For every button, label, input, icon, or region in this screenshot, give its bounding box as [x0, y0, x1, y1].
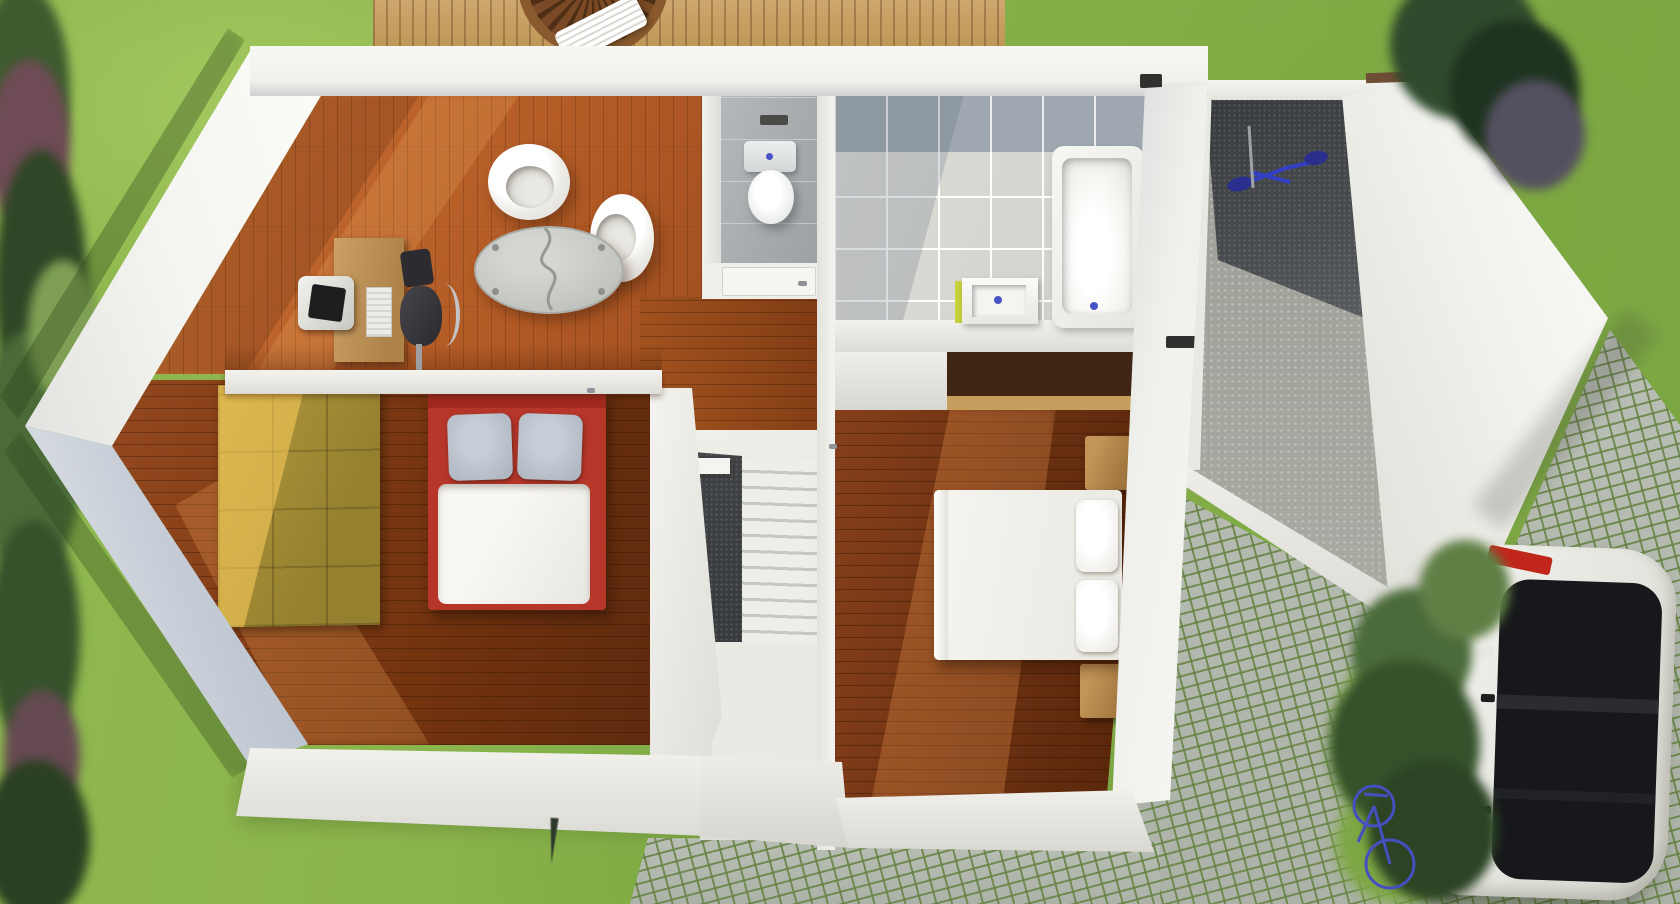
keyboard — [366, 287, 392, 337]
bedroom2-counter-edge — [947, 396, 1141, 410]
wardrobe — [218, 383, 380, 628]
oval-glass-table — [474, 226, 624, 314]
table-leg — [598, 244, 605, 251]
exterior-wall-south — [836, 790, 1154, 852]
bed-double-red-frame — [428, 388, 606, 610]
computer-monitor — [298, 276, 354, 330]
bedroom2-counter — [947, 352, 1141, 398]
bathroom-sink — [962, 278, 1038, 324]
hall-partition-shadow — [225, 344, 662, 372]
table-leg — [492, 244, 499, 251]
wall-vent — [1166, 336, 1198, 348]
bathtub-basin — [1062, 158, 1132, 314]
office-chair-post — [416, 344, 422, 372]
exterior-wall-north — [250, 46, 1208, 96]
cistern-pipe — [760, 115, 788, 125]
door-handle — [587, 388, 595, 393]
pillow — [517, 413, 583, 481]
wc-door-band — [702, 263, 834, 299]
bathroom-south-wall — [834, 352, 948, 410]
corridor-wall — [817, 86, 835, 850]
wardrobe-sunlit-face — [218, 383, 380, 628]
tub-chair-cushion — [506, 166, 554, 208]
toilet-bowl — [748, 170, 794, 224]
car-door-handle — [1481, 694, 1495, 702]
table-leg — [492, 288, 499, 295]
flush-button — [766, 153, 773, 160]
plant-stake — [547, 818, 558, 864]
exterior-wall-south — [700, 756, 850, 848]
door-handle — [798, 281, 807, 286]
office-chair-arm — [430, 284, 460, 346]
office-chair-back — [400, 248, 435, 288]
stair-winder-steps — [712, 642, 820, 774]
bed-duvet — [438, 484, 590, 604]
bed-double-white — [934, 490, 1122, 660]
stair-straight-flight — [742, 457, 820, 656]
bush — [1368, 760, 1498, 900]
bathtub — [1052, 146, 1144, 328]
car-glass-roof — [1491, 578, 1663, 883]
bush — [1420, 540, 1510, 640]
partition-wall-bedroom1 — [225, 370, 662, 394]
bed-footboard — [934, 490, 948, 660]
pillow — [447, 413, 513, 481]
floorplan-render — [0, 0, 1680, 904]
door-handle — [829, 444, 837, 449]
table-leg — [598, 288, 605, 295]
sink-drain — [994, 296, 1002, 304]
pillow — [1076, 580, 1118, 652]
wood-deck — [373, 0, 1005, 50]
wall-vent — [1140, 74, 1162, 88]
monitor-screen — [308, 284, 346, 322]
tree-top-right — [1485, 80, 1585, 190]
toilet-tank — [744, 141, 796, 172]
tub-drain — [1090, 302, 1098, 310]
wc-left-wall — [702, 86, 721, 266]
tub-chair — [488, 144, 570, 220]
pillow — [1076, 500, 1118, 572]
